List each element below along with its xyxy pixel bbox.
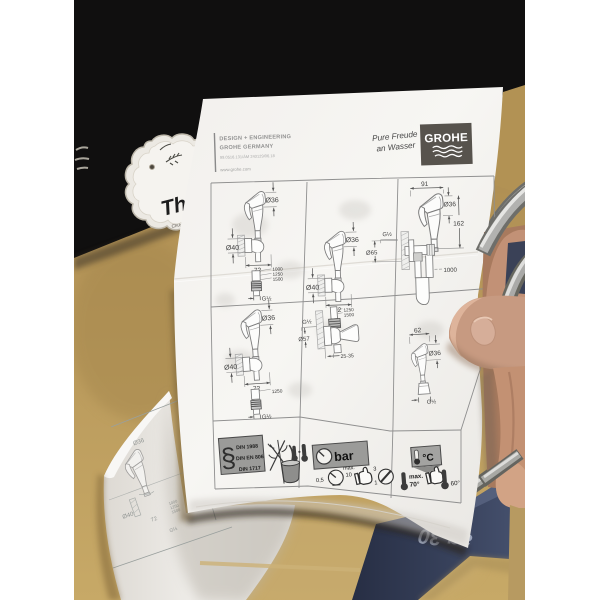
svg-text:1500: 1500	[344, 312, 355, 318]
svg-text:0,5: 0,5	[316, 478, 324, 485]
svg-text:Ø65: Ø65	[366, 250, 378, 256]
svg-text:1: 1	[374, 480, 378, 486]
svg-text:1500: 1500	[273, 277, 284, 282]
svg-text:G½: G½	[382, 231, 392, 238]
svg-text:10: 10	[345, 472, 352, 478]
svg-text:3: 3	[373, 466, 377, 472]
svg-text:www.grohe.com: www.grohe.com	[220, 166, 251, 172]
svg-text:max.: max.	[409, 473, 424, 481]
svg-text:1000: 1000	[443, 268, 457, 274]
svg-text:70°: 70°	[409, 480, 420, 489]
svg-text:Ø57: Ø57	[298, 336, 310, 343]
svg-text:91: 91	[421, 181, 429, 188]
svg-text:60°: 60°	[450, 480, 460, 488]
svg-text:°C: °C	[422, 452, 434, 464]
svg-text:Ø36: Ø36	[444, 201, 457, 208]
svg-text:GROHE: GROHE	[424, 131, 468, 145]
svg-text:Ø36: Ø36	[428, 350, 441, 358]
svg-text:G½: G½	[302, 318, 312, 326]
svg-text:162: 162	[453, 220, 464, 227]
svg-text:bar: bar	[334, 449, 355, 464]
svg-text:G½: G½	[427, 398, 437, 406]
svg-text:max.: max.	[343, 465, 355, 472]
svg-text:1250: 1250	[272, 388, 283, 395]
svg-text:25-35: 25-35	[340, 353, 354, 360]
svg-text:§: §	[220, 442, 237, 473]
svg-text:62: 62	[414, 327, 422, 334]
